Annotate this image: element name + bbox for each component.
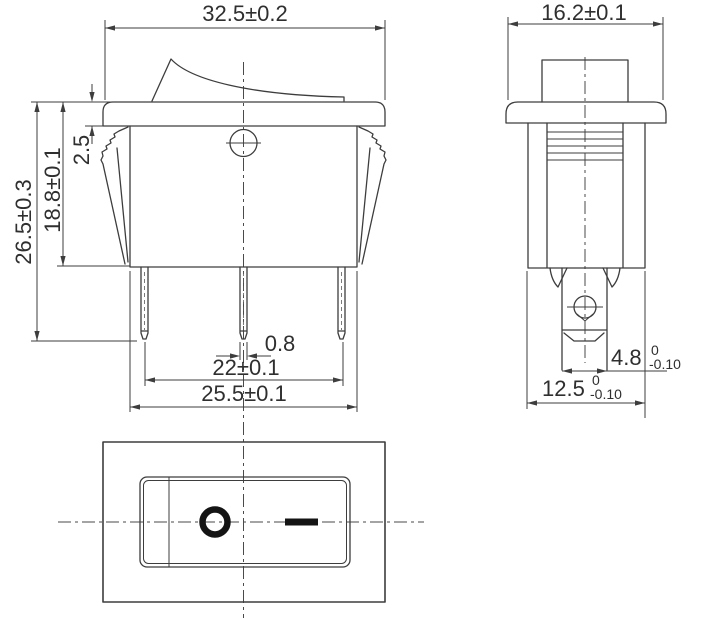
terminal-left xyxy=(141,267,148,339)
dim-terminal-thickness: 0.8 xyxy=(265,331,296,356)
dim-terminal-width-tol-lower: -0.10 xyxy=(649,356,681,372)
rocker-switch-drawing: 32.5±0.2 26.5±0.3 18.8±0.1 2.5 0.8 22±0.… xyxy=(0,0,701,619)
front-dimensions: 32.5±0.2 26.5±0.3 18.8±0.1 2.5 0.8 22±0.… xyxy=(11,1,385,412)
dim-base-depth-tol-lower: -0.10 xyxy=(590,386,622,402)
dim-front-width: 32.5±0.2 xyxy=(202,1,287,26)
dim-side-width: 16.2±0.1 xyxy=(541,0,626,25)
dim-base-width: 25.5±0.1 xyxy=(201,381,286,406)
right-snap-clip xyxy=(359,127,386,264)
dim-body-height: 18.8±0.1 xyxy=(40,147,65,232)
side-barb-right xyxy=(603,268,620,287)
left-snap-clip xyxy=(101,127,128,264)
dim-terminal-span: 22±0.1 xyxy=(212,355,279,380)
side-body xyxy=(528,123,645,268)
right-snap-clip-inner xyxy=(359,148,370,262)
dim-terminal-width-value: 4.8 xyxy=(611,345,642,370)
drawing-sheet: 32.5±0.2 26.5±0.3 18.8±0.1 2.5 0.8 22±0.… xyxy=(0,0,701,619)
side-dimensions: 16.2±0.1 4.8 0 -0.10 12.5 0 -0.10 xyxy=(508,0,681,418)
terminal-right xyxy=(338,267,345,339)
dim-flange-thickness: 2.5 xyxy=(69,135,94,166)
front-body xyxy=(130,126,357,267)
face-view xyxy=(58,442,424,602)
rocker-actuator xyxy=(152,59,344,101)
dim-overall-height: 26.5±0.3 xyxy=(11,179,36,264)
side-view xyxy=(506,57,666,370)
on-symbol-icon xyxy=(285,519,318,526)
dim-base-depth-value: 12.5 xyxy=(542,376,585,401)
left-snap-clip-inner xyxy=(117,148,128,262)
side-barb-left xyxy=(550,268,567,287)
side-flange xyxy=(506,102,666,123)
terminal-center xyxy=(240,267,247,339)
